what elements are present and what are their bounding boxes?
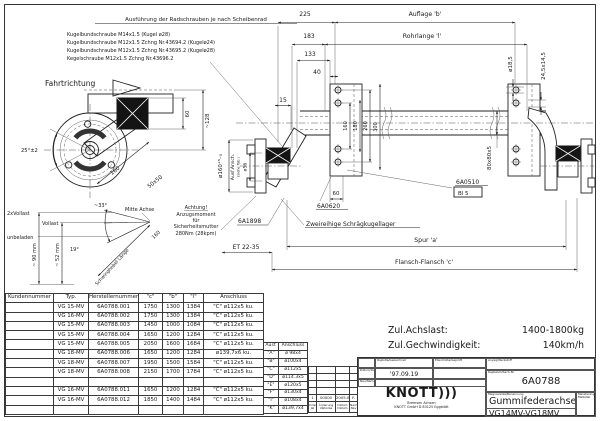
drawing-subtitle: VG14MV-VG18MV [487, 408, 575, 417]
dim-50x50: 50x50 [147, 174, 165, 190]
material-label: Anyag/Werkstoff [487, 359, 595, 362]
ausfuehrung-table: Ausf.Anschluss "A"ø 98x4"B"ø100x4"C"ø112… [263, 342, 308, 414]
note-line: Kugelbundschraube M12x1.5 Zchng Nr.43695… [67, 48, 215, 54]
table-cell: 6A0788.005 [89, 340, 139, 349]
wheel-bolt [247, 145, 255, 154]
table-row [309, 388, 358, 395]
table-cell: "C" ø112x5 ku. [204, 321, 264, 330]
table-cell: "C" ø112x5 ku. [204, 340, 264, 349]
dim-flansch-c: Flansch-Flansch 'c' [395, 259, 453, 266]
dim-v300: 300 [373, 122, 379, 132]
table-cell: Datum Dátum [336, 402, 350, 413]
table-cell: VG 18-MV [54, 359, 89, 368]
table-cell [184, 377, 204, 386]
table-cell [6, 349, 54, 358]
table-cell: VG 15-MV [54, 340, 89, 349]
bottom-dimensions: ET 22-35 Spur 'a' Flansch-Flansch 'c' [222, 198, 577, 272]
table-cell: VG 15-MV [54, 321, 89, 330]
table-cell: ø114.3x5 [279, 374, 308, 382]
table-cell: 1384 [184, 303, 204, 312]
dim-56: ø56 [243, 163, 249, 172]
table-row: "F"ø130x4 [264, 390, 308, 398]
table-cell: "K" [264, 406, 279, 414]
dim-60: 60 [185, 110, 191, 117]
name-label: Név/Name [359, 380, 374, 383]
table-row: 1000002005.08.14F. [309, 395, 358, 402]
table-cell [309, 381, 317, 388]
table-cell [204, 405, 264, 414]
column-header: Anschluss [204, 294, 264, 303]
table-cell: 00000 [317, 395, 336, 402]
table-cell: 1750 [139, 303, 163, 312]
knott-logo: KNOTT [386, 386, 439, 401]
notes-header: Ausführung der Radschrauben je nach Sche… [125, 17, 267, 23]
table-cell [6, 312, 54, 321]
table-cell: "D" [264, 374, 279, 382]
label-unbeladen: unbeladen [7, 235, 33, 241]
column-header: Anschluss [279, 343, 308, 351]
table-cell: ø120x5 [279, 382, 308, 390]
table-cell: 1484 [184, 396, 204, 405]
achtung-line: Achtung! [185, 205, 208, 211]
dim-rohrlange-l: Rohrlange 'l' [403, 33, 442, 40]
table-cell: 1084 [184, 321, 204, 330]
table-cell: 1284 [184, 349, 204, 358]
table-cell: 2050 [139, 340, 163, 349]
table-row [309, 374, 358, 381]
table-cell [336, 381, 350, 388]
company-logo: KNOTT))) Bremsen Achsen KNOTT GmbH D 831… [358, 387, 486, 417]
table-row: VG 15-MV6A0788.001175013001384"C" ø112x5… [6, 303, 264, 312]
date-value: '97.09.19 [375, 368, 433, 380]
dim-15: 15 [279, 97, 287, 104]
table-cell [184, 405, 204, 414]
table-cell: ø 98x4 [279, 350, 308, 358]
table-cell [6, 396, 54, 405]
table-cell: 1200 [163, 349, 184, 358]
wheel-bolt [247, 178, 255, 187]
table-cell [6, 340, 54, 349]
table-cell: VG 16-MV [54, 386, 89, 395]
table-cell: "C" ø112x5 ku. [204, 331, 264, 340]
table-cell: "C" ø112x5 ku. [204, 303, 264, 312]
table-cell: 1850 [139, 396, 163, 405]
table-cell [89, 377, 139, 386]
table-cell: 1650 [139, 386, 163, 395]
table-row: VG 16-MV6A0788.012185014001484"C" ø112x5… [6, 396, 264, 405]
table-row: "A"ø 98x4 [264, 350, 308, 358]
drawing-title: Gummifederachse [487, 396, 575, 407]
table-cell: 1284 [184, 386, 204, 395]
table-row: VG 16-MV6A0788.002175013001384"C" ø112x5… [6, 312, 264, 321]
load-diagram: 2xVollast Vollast unbeladen ~33° 19° Mit… [7, 203, 162, 287]
dim-slot-24-5: 24,5x14,5 [541, 52, 547, 80]
ausf-ansch-label: Ausf.Ansch. [230, 154, 236, 181]
table-cell [309, 367, 317, 374]
column-header: "c" [139, 294, 163, 303]
table-cell: 6A0788.004 [89, 331, 139, 340]
table-cell: 1450 [139, 321, 163, 330]
note-line: Kugelbundschraube M14x1.5 (Kugel ø28) [67, 32, 170, 38]
table-cell [6, 321, 54, 330]
permitted-values: Zul.Achslast: 1400-1800kg Zul.Gechwindig… [388, 324, 584, 353]
angle-25-label: 25°±2 [21, 148, 38, 154]
table-row: VG 15-MV6A0788.004165012001284"C" ø112x5… [6, 331, 264, 340]
table-cell: 1300 [163, 312, 184, 321]
drawing-sheet: Ausführung der Radschrauben je nach Sche… [0, 0, 600, 421]
achtung-line: 280Nm (28kpm) [176, 231, 217, 237]
column-header: "l" [184, 294, 204, 303]
dim-52mm: ~ 52 mm [55, 243, 61, 267]
table-row: "E"ø120x5 [264, 382, 308, 390]
table-cell: 6A0788.002 [89, 312, 139, 321]
table-cell: Änderung Változás [317, 402, 336, 413]
table-cell [6, 359, 54, 368]
table-cell [204, 377, 264, 386]
table-cell: ø100x4 [279, 358, 308, 366]
driving-direction: Fahrtrichtung [45, 79, 140, 96]
dim-v180: 180 [353, 121, 359, 131]
table-cell: ø108x4 [279, 398, 308, 406]
table-cell: VG 15-MV [54, 303, 89, 312]
speed-label: Zul.Gechwindigkeit: [388, 339, 480, 354]
table-row [309, 381, 358, 388]
dim-40: 40 [313, 69, 321, 76]
table-row: VG 18-MV6A0788.008215017001784"C" ø112x5… [6, 368, 264, 377]
table-cell: 1000 [163, 321, 184, 330]
table-cell: 2150 [139, 368, 163, 377]
dim-133: 133 [304, 51, 316, 58]
siehe-tab-label: (siehe Tab.) [237, 157, 241, 177]
table-cell: "C" ø112x5 ku. [204, 386, 264, 395]
table-row [6, 405, 264, 414]
table-cell [6, 405, 54, 414]
table-cell: VG 18-MV [54, 349, 89, 358]
table-row [309, 367, 358, 374]
table-cell [336, 367, 350, 374]
table-cell: 1600 [163, 340, 184, 349]
dim-90mm: ~ 90 mm [32, 243, 38, 267]
table-row: VG 18-MV6A0788.006165012001284ø139,7x6 k… [6, 349, 264, 358]
table-cell [317, 388, 336, 395]
schwinghebel-label: Schwinghebel Länge [94, 248, 130, 287]
label-2xvollast: 2xVollast [7, 211, 30, 217]
dim-80x80x5: 80x80x5 [487, 146, 493, 171]
note-line: Kegelschraube M12x1.5 Zchng Nr.43696.2 [67, 56, 173, 62]
dim-et: ET 22-35 [233, 244, 260, 251]
wheel-bolt [588, 145, 595, 154]
table-cell [309, 388, 317, 395]
front-view [236, 84, 595, 193]
torque-warning-note: Achtung! Anzugsmoment für Sicherheitsmut… [174, 196, 256, 237]
dim-160-side: 160 [109, 165, 121, 177]
table-row: Index JelÄnderung VáltozásDatum DátumNam… [309, 402, 358, 413]
table-cell: 6A0788.006 [89, 349, 139, 358]
label-vollast: Vollast [42, 221, 59, 227]
table-cell: 1 [309, 395, 317, 402]
dim-183: 183 [303, 33, 315, 40]
table-cell [317, 381, 336, 388]
table-row [6, 377, 264, 386]
revision-table: 1000002005.08.14F.Index JelÄnderung Vált… [308, 366, 358, 413]
top-dimensions: 225 Auflage 'b' 183 Rohrlange 'l' 133 40… [275, 11, 527, 148]
table-cell: 1400 [163, 396, 184, 405]
wheel-bolt [588, 178, 595, 187]
mitte-achse-label: Mitte Achse [125, 207, 154, 213]
table-cell: "A" [264, 350, 279, 358]
table-cell: 1300 [163, 303, 184, 312]
bearing-label: Zweireihige Schrägkugellager [306, 221, 396, 228]
dim-v260: 260 [363, 121, 369, 131]
ausf-header-row: Ausf.Anschluss [264, 343, 308, 351]
dim-spur-a: Spur 'a' [414, 237, 438, 244]
table-cell: 2005.08.14 [336, 395, 350, 402]
table-cell: 6A0788.008 [89, 368, 139, 377]
table-cell [6, 386, 54, 395]
table-cell: 1284 [184, 331, 204, 340]
table-cell: Index Jel [309, 402, 317, 413]
table-cell [139, 405, 163, 414]
achtung-line: Sicherheitsmutter [174, 224, 220, 230]
column-header: Kundennummer [6, 294, 54, 303]
dim-225: 225 [299, 11, 311, 18]
table-cell: 6A0788.007 [89, 359, 139, 368]
table-cell: ø139,7x4 [279, 406, 308, 414]
scale-label: Méretarány Maßstab [577, 393, 595, 400]
table-cell: VG 18-MV [54, 368, 89, 377]
table-cell: VG 16-MV [54, 312, 89, 321]
part-6a0620-label: 6A0620 [317, 203, 340, 210]
variants-header-row: KundennummerTyp.Herstellernummer"c""b""l… [6, 294, 264, 303]
table-row: VG 18-MV6A0788.007195015001584"C" ø112x5… [6, 359, 264, 368]
table-row: "K"ø139,7x4 [264, 406, 308, 414]
company-address: KNOTT GmbH D 83125 Eggstätt [358, 405, 485, 409]
table-cell [317, 367, 336, 374]
fahrtrichtung-label: Fahrtrichtung [45, 79, 95, 88]
variants-table: KundennummerTyp.Herstellernummer"c""b""l… [5, 293, 264, 415]
table-cell: ø139,7x6 ku. [204, 349, 264, 358]
table-cell: VG 15-MV [54, 331, 89, 340]
table-cell: VG 16-MV [54, 396, 89, 405]
notes-leader-line [210, 62, 282, 146]
table-cell: ø112x5 [279, 366, 308, 374]
table-row: VG 15-MV6A0788.005205016001684"C" ø112x5… [6, 340, 264, 349]
table-row: VG 15-MV6A0788.003145010001084"C" ø112x5… [6, 321, 264, 330]
table-cell: "C" ø112x5 ku. [204, 359, 264, 368]
table-row: "C"ø112x5 [264, 366, 308, 374]
knott-logo-arcs-icon: ))) [438, 386, 457, 401]
table-cell [163, 377, 184, 386]
table-cell: "C" ø112x5 ku. [204, 396, 264, 405]
table-cell: 6A0788.003 [89, 321, 139, 330]
table-row: "B"ø100x4 [264, 358, 308, 366]
table-cell: 1950 [139, 359, 163, 368]
dim-flange-160: ø160⁺⁵₋₀ [217, 153, 224, 178]
table-cell [54, 377, 89, 386]
table-cell: "B" [264, 358, 279, 366]
speed-value: 140km/h [543, 339, 584, 354]
table-cell: "I" [264, 398, 279, 406]
table-row: "I"ø108x4 [264, 398, 308, 406]
drawn-label: Rajzolta/Gezeichnet [376, 359, 432, 362]
angle-33-label: ~33° [94, 203, 108, 209]
part-6a1898-label: 6A1898 [238, 218, 261, 225]
dim-auflage-b: Auflage 'b' [409, 11, 442, 18]
table-cell [309, 374, 317, 381]
column-header: "b" [163, 294, 184, 303]
dim-160-lever: 160 [151, 230, 162, 241]
table-cell: "E" [264, 382, 279, 390]
table-cell [6, 377, 54, 386]
column-header: Herstellernummer [89, 294, 139, 303]
table-cell: 1200 [163, 331, 184, 340]
dim-128: ~128 [205, 113, 211, 129]
table-cell: 6A0788.012 [89, 396, 139, 405]
table-cell: 1684 [184, 340, 204, 349]
table-cell: "C" ø112x5 ku. [204, 368, 264, 377]
table-row: VG 16-MV6A0788.011165012001284"C" ø112x5… [6, 386, 264, 395]
date-label: Dátum/Datum [359, 369, 374, 372]
table-cell: 1500 [163, 359, 184, 368]
note-line: Kugelbundschraube M12x1.5 Zchng Nr.43694… [67, 40, 215, 46]
achslast-label: Zul.Achslast: [388, 324, 448, 339]
table-cell: "C" [264, 366, 279, 374]
table-cell: 6A0788.011 [89, 386, 139, 395]
achslast-value: 1400-1800kg [522, 324, 584, 339]
table-cell: 1384 [184, 312, 204, 321]
table-cell: 1584 [184, 359, 204, 368]
table-cell [336, 388, 350, 395]
column-header: Typ. [54, 294, 89, 303]
table-cell: "C" ø112x5 ku. [204, 312, 264, 321]
table-cell [336, 374, 350, 381]
table-cell: 1200 [163, 386, 184, 395]
table-cell [6, 331, 54, 340]
table-cell [54, 405, 89, 414]
drawing-number: 6A0788 [487, 374, 595, 390]
table-cell [6, 368, 54, 377]
title-block: Rajzolta/Gezeichnet Ellenőrizte/Geprüft … [357, 357, 595, 416]
bl5-label: Bl 5 [458, 191, 469, 197]
part-6a0510-label: 6A0510 [456, 179, 479, 186]
table-cell [317, 374, 336, 381]
wheel-bolt-notes: Ausführung der Radschrauben je nach Sche… [67, 17, 297, 146]
table-cell: 1650 [139, 349, 163, 358]
table-row: "D"ø114.3x5 [264, 374, 308, 382]
table-cell: 1750 [139, 312, 163, 321]
angle-19-label: 19° [70, 247, 79, 253]
table-cell: 1700 [163, 368, 184, 377]
dim-v160: 160 [343, 121, 349, 131]
dim-60-plate: 60 [333, 191, 340, 197]
column-header: Ausf. [264, 343, 279, 351]
table-cell [6, 303, 54, 312]
table-cell: 1784 [184, 368, 204, 377]
table-cell: 1650 [139, 331, 163, 340]
table-cell [89, 405, 139, 414]
table-cell: ø130x4 [279, 390, 308, 398]
table-cell: 6A0788.001 [89, 303, 139, 312]
table-cell [163, 405, 184, 414]
dim-hole-18-5: ø18,5 [508, 56, 514, 72]
table-cell: "F" [264, 390, 279, 398]
table-cell [139, 377, 163, 386]
checked-label: Ellenőrizte/Geprüft [434, 359, 485, 362]
